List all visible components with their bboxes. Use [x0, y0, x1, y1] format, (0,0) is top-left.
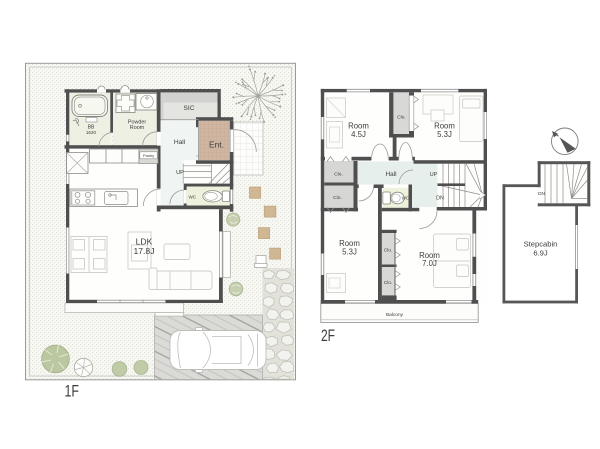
svg-text:17.8J: 17.8J [133, 246, 154, 256]
svg-text:Hall: Hall [385, 171, 396, 178]
svg-text:5.3J: 5.3J [342, 247, 357, 256]
svg-text:Stepcabin: Stepcabin [524, 240, 558, 249]
svg-text:Ent.: Ent. [209, 140, 224, 150]
svg-text:Clo.: Clo. [384, 280, 393, 286]
svg-text:Hall: Hall [174, 139, 186, 146]
svg-text:WC: WC [402, 196, 410, 201]
svg-text:DN: DN [538, 191, 545, 196]
svg-text:Room: Room [130, 125, 145, 131]
svg-text:Balcony: Balcony [386, 312, 404, 318]
svg-text:Clo.: Clo. [333, 195, 342, 201]
svg-text:UP: UP [430, 172, 438, 178]
svg-text:WC: WC [188, 194, 196, 199]
svg-text:5.3J: 5.3J [437, 130, 452, 139]
svg-text:1620: 1620 [86, 130, 97, 135]
svg-text:Clo.: Clo. [334, 171, 343, 177]
svg-text:1F: 1F [65, 382, 80, 401]
svg-text:Clo.: Clo. [397, 115, 406, 121]
svg-text:2F: 2F [321, 326, 335, 345]
svg-text:Clo.: Clo. [384, 248, 393, 254]
svg-text:DN: DN [436, 195, 444, 201]
svg-text:4.5J: 4.5J [351, 130, 366, 139]
svg-text:6.9J: 6.9J [533, 249, 548, 258]
svg-text:Pantry: Pantry [143, 153, 154, 158]
svg-text:UP: UP [176, 170, 184, 176]
svg-text:7.0J: 7.0J [422, 259, 437, 268]
svg-text:SIC: SIC [184, 105, 195, 112]
